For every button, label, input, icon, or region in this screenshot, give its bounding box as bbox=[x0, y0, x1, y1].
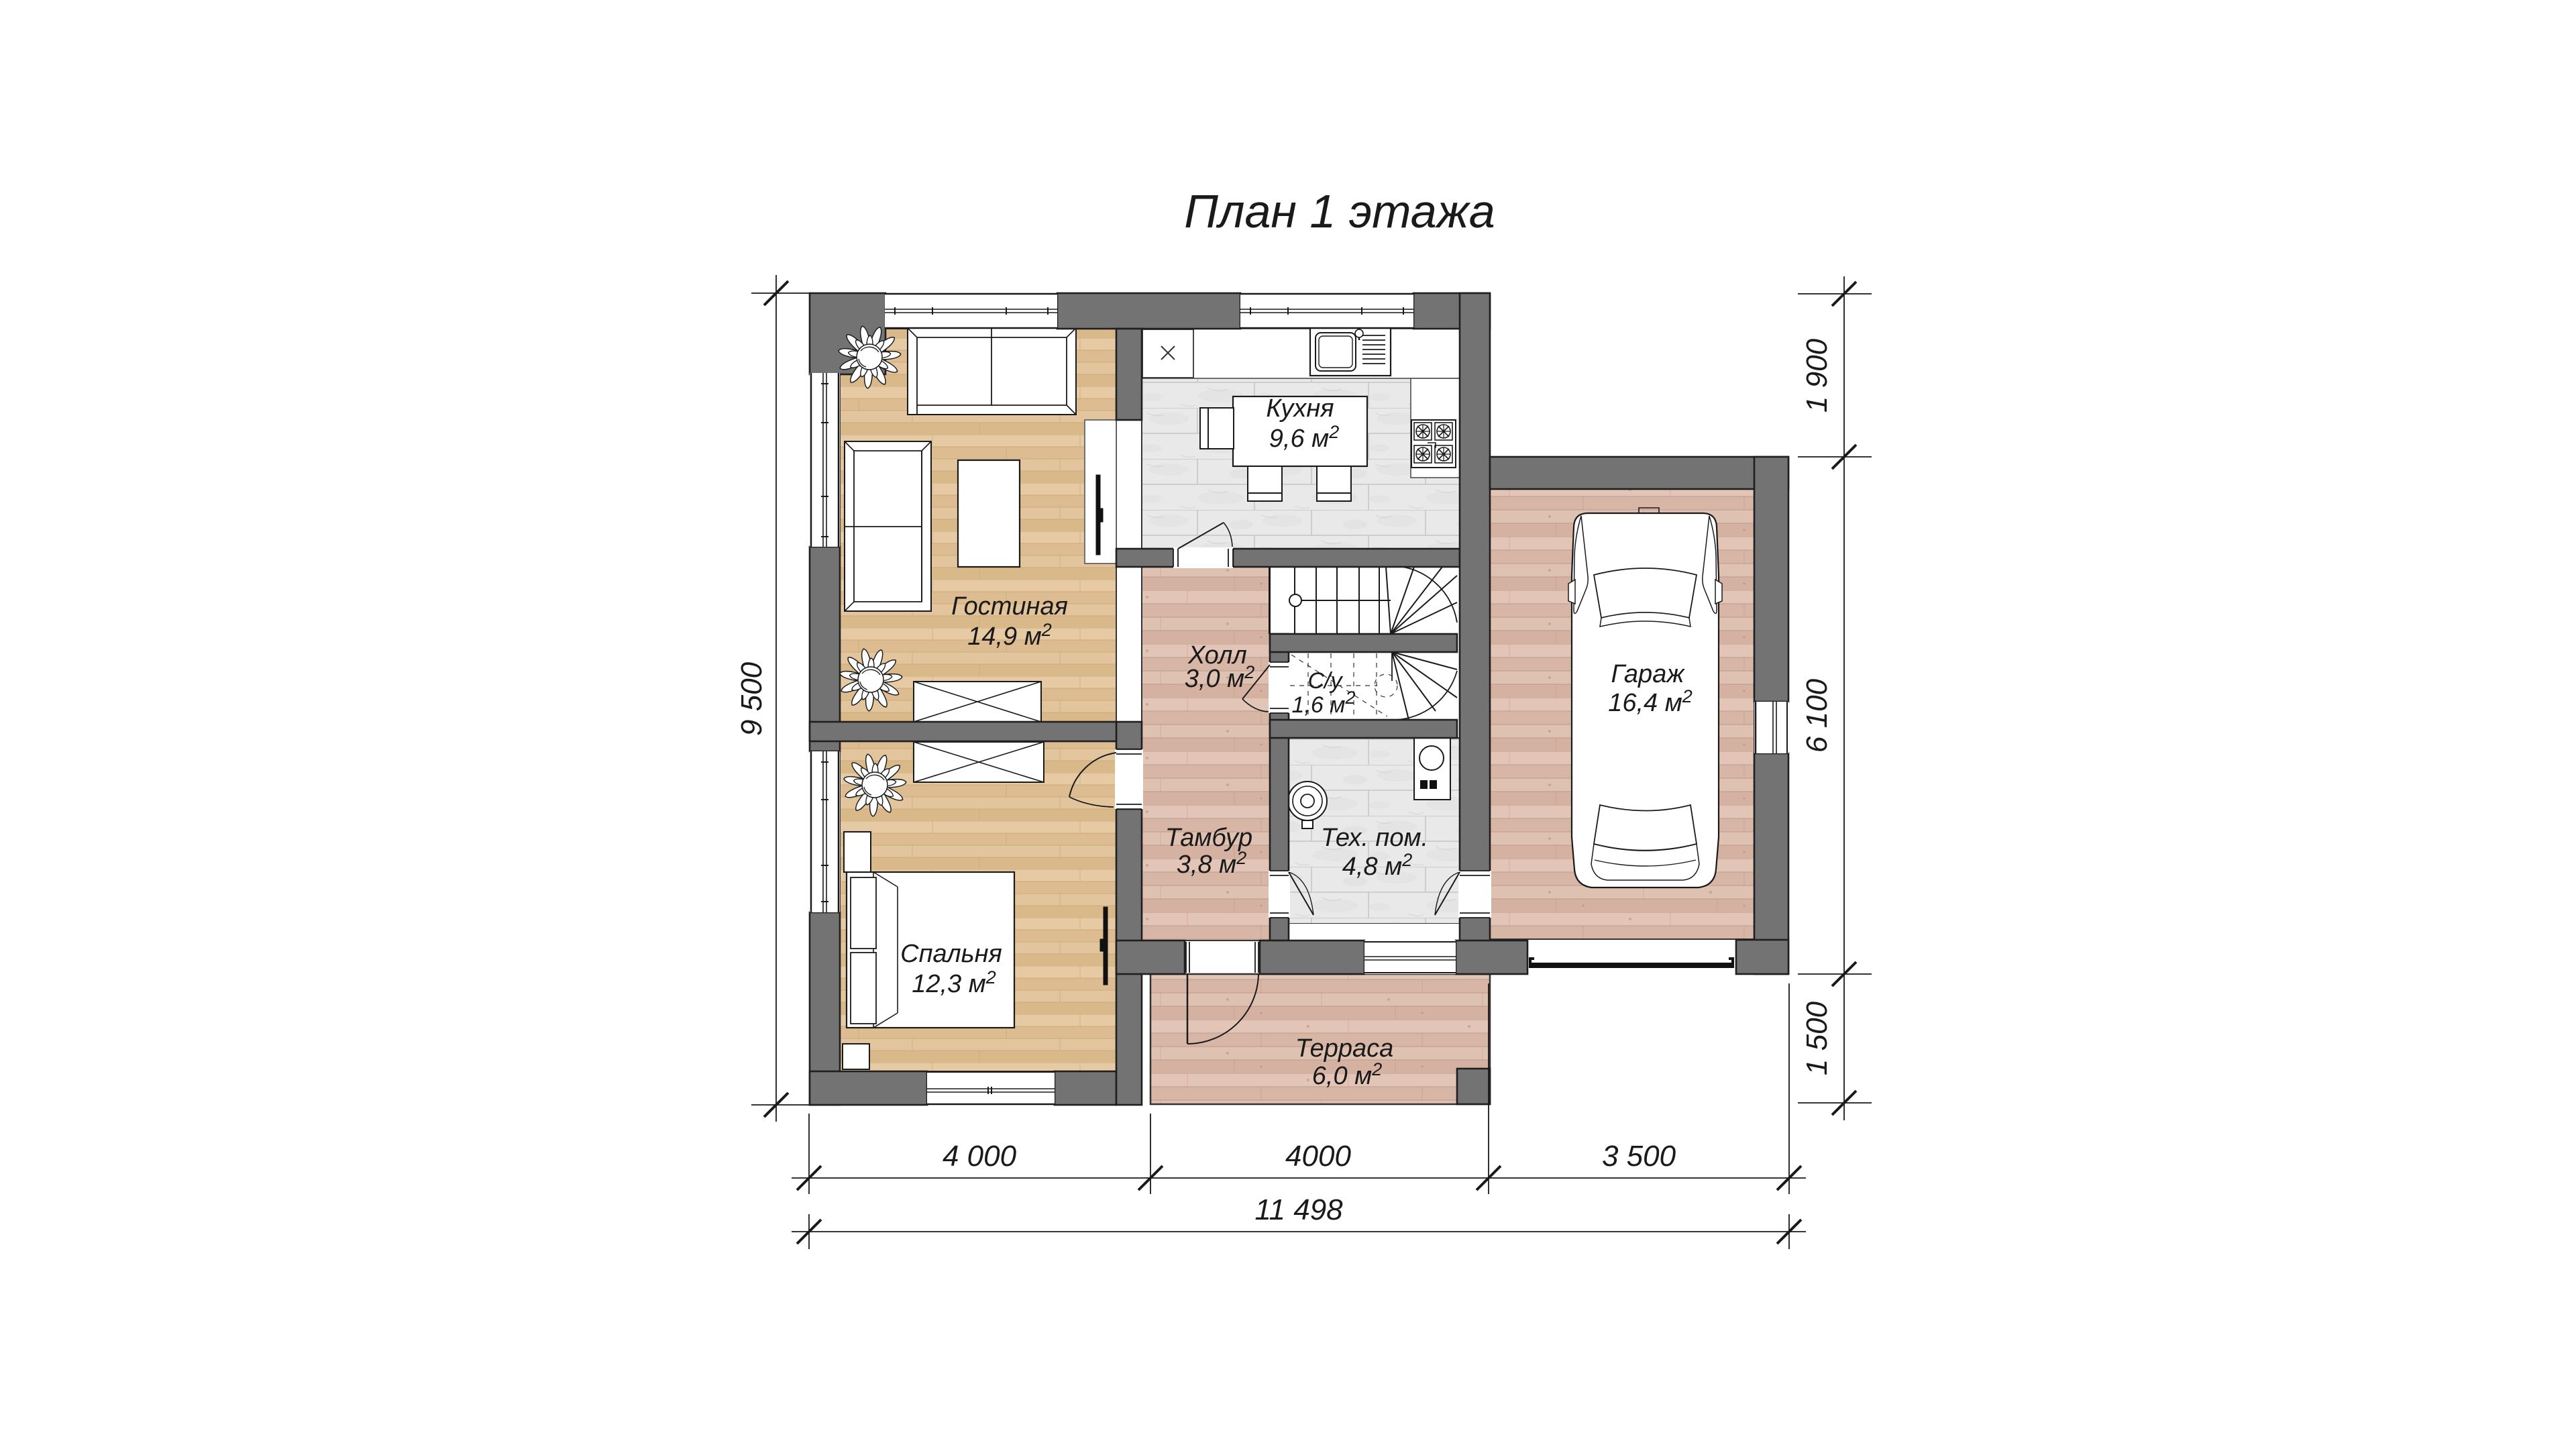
svg-text:14,9 м2: 14,9 м2 bbox=[967, 620, 1052, 651]
svg-text:16,4 м2: 16,4 м2 bbox=[1608, 686, 1693, 717]
svg-text:Кухня: Кухня bbox=[1266, 394, 1334, 423]
svg-text:9,6 м2: 9,6 м2 bbox=[1269, 422, 1339, 453]
svg-text:11 498: 11 498 bbox=[1254, 1193, 1343, 1226]
svg-text:1 900: 1 900 bbox=[1801, 338, 1833, 413]
svg-text:4 000: 4 000 bbox=[943, 1140, 1017, 1173]
svg-text:3,0 м2: 3,0 м2 bbox=[1185, 662, 1254, 693]
svg-text:Гараж: Гараж bbox=[1611, 660, 1686, 688]
svg-text:4,8 м2: 4,8 м2 bbox=[1342, 850, 1412, 881]
svg-text:3 500: 3 500 bbox=[1602, 1140, 1676, 1173]
svg-text:С/у: С/у bbox=[1308, 668, 1344, 694]
svg-text:4000: 4000 bbox=[1285, 1140, 1351, 1173]
svg-text:6,0 м2: 6,0 м2 bbox=[1312, 1059, 1382, 1090]
svg-text:6 100: 6 100 bbox=[1801, 678, 1833, 753]
svg-text:Тех. пом.: Тех. пом. bbox=[1321, 824, 1428, 852]
svg-text:Гостиная: Гостиная bbox=[951, 592, 1068, 621]
svg-text:3,8 м2: 3,8 м2 bbox=[1177, 848, 1246, 879]
svg-text:9 500: 9 500 bbox=[735, 661, 768, 736]
svg-text:12,3 м2: 12,3 м2 bbox=[912, 967, 996, 998]
svg-text:1 500: 1 500 bbox=[1801, 1001, 1833, 1075]
svg-text:План 1 этажа: План 1 этажа bbox=[1184, 185, 1495, 237]
svg-text:Терраса: Терраса bbox=[1295, 1034, 1394, 1063]
svg-text:Спальня: Спальня bbox=[900, 940, 1002, 968]
